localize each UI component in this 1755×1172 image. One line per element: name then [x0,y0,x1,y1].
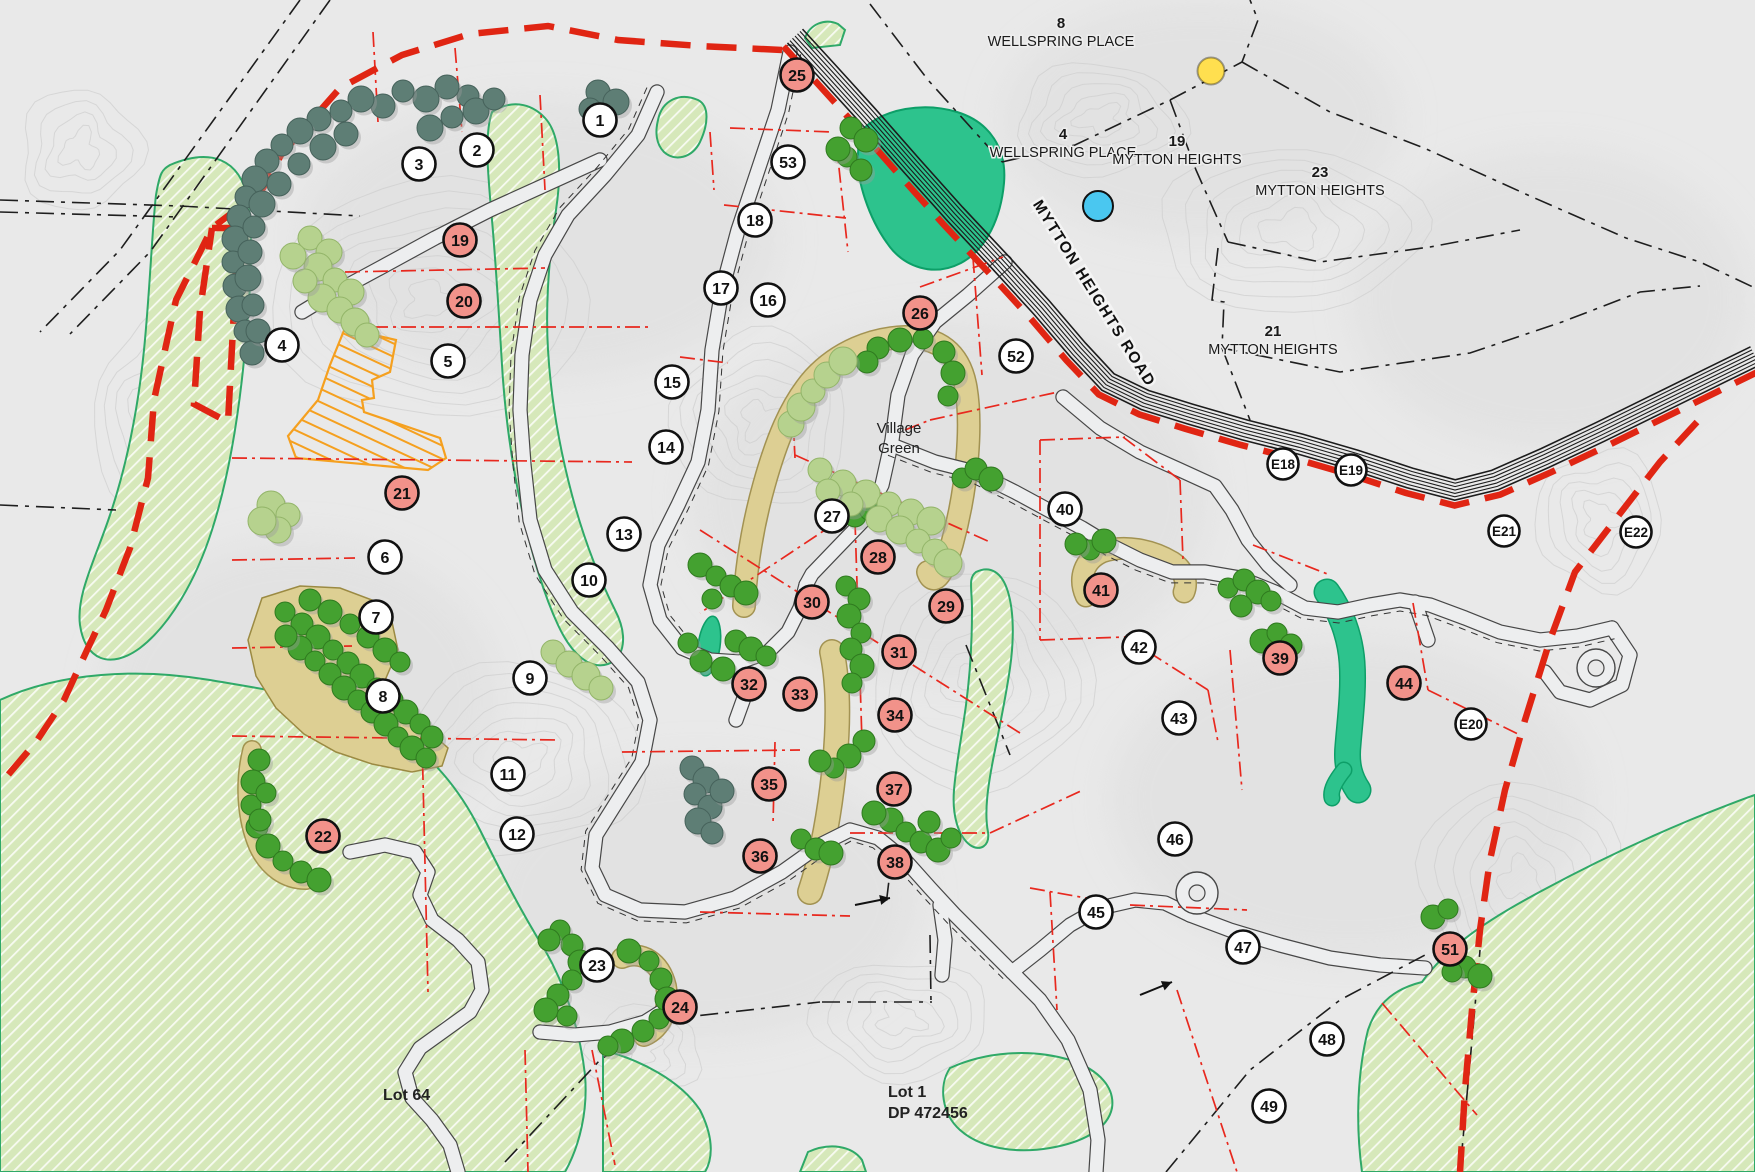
svg-text:34: 34 [886,708,904,725]
lot-marker-45: 45 [1080,896,1113,929]
lot-marker-E21: E21 [1489,516,1520,547]
lot-marker-27: 27 [816,500,849,533]
lot-marker-9: 9 [514,662,547,695]
lot-marker-35: 35 [753,768,786,801]
svg-text:8: 8 [379,689,388,706]
svg-text:45: 45 [1087,905,1105,922]
svg-text:1: 1 [596,113,605,130]
svg-text:48: 48 [1318,1032,1336,1049]
lot-marker-28: 28 [862,541,895,574]
lot-marker-30: 30 [796,586,829,619]
svg-text:4: 4 [278,338,287,355]
lot-marker-16: 16 [752,284,785,317]
lot-marker-18: 18 [739,204,772,237]
lot-marker-24: 24 [664,991,697,1024]
lot-marker-38: 38 [879,846,912,879]
svg-text:21: 21 [1265,323,1282,340]
svg-text:2: 2 [473,143,482,160]
svg-text:30: 30 [803,595,821,612]
lot-marker-6: 6 [369,541,402,574]
blue-dot [1083,191,1113,221]
svg-text:38: 38 [886,855,904,872]
lot-marker-20: 20 [448,285,481,318]
lot-marker-E22: E22 [1621,517,1652,548]
lot-marker-33: 33 [784,678,817,711]
svg-text:35: 35 [760,777,778,794]
svg-text:16: 16 [759,293,777,310]
site-plan-map: 8WELLSPRING PLACE4WELLSPRING PLACE19MYTT… [0,0,1755,1172]
svg-text:26: 26 [911,306,929,323]
svg-text:24: 24 [671,1000,689,1017]
svg-text:42: 42 [1130,640,1148,657]
lot-marker-52: 52 [1000,340,1033,373]
lot-marker-14: 14 [650,431,683,464]
lot-marker-44: 44 [1388,667,1421,700]
svg-text:Lot 1: Lot 1 [888,1084,926,1101]
lot-marker-E20: E20 [1456,709,1487,740]
svg-text:MYTTON HEIGHTS: MYTTON HEIGHTS [1255,183,1384,199]
lot-marker-48: 48 [1311,1023,1344,1056]
svg-text:22: 22 [314,829,332,846]
lot-marker-32: 32 [733,668,766,701]
lot-marker-2: 2 [461,134,494,167]
lot-marker-39: 39 [1264,642,1297,675]
svg-text:51: 51 [1441,942,1459,959]
svg-text:E21: E21 [1492,524,1517,539]
lot-marker-15: 15 [656,366,689,399]
svg-text:9: 9 [526,671,535,688]
svg-text:3: 3 [415,157,424,174]
svg-text:MYTTON HEIGHTS: MYTTON HEIGHTS [1208,342,1337,358]
lot-marker-3: 3 [403,148,436,181]
svg-text:23: 23 [1312,164,1329,181]
svg-text:12: 12 [508,827,526,844]
svg-text:15: 15 [663,375,681,392]
svg-text:40: 40 [1056,502,1074,519]
svg-text:49: 49 [1260,1099,1278,1116]
svg-text:37: 37 [885,782,903,799]
lot-marker-8: 8 [367,680,400,713]
lot-marker-40: 40 [1049,493,1082,526]
yellow-dot [1198,58,1225,85]
svg-text:47: 47 [1234,940,1252,957]
lot-marker-E19: E19 [1336,455,1367,486]
svg-text:23: 23 [588,958,606,975]
lot-marker-5: 5 [432,345,465,378]
lot-marker-11: 11 [492,758,525,791]
svg-text:19: 19 [1169,133,1186,150]
svg-text:DP 472456: DP 472456 [888,1105,968,1122]
svg-text:13: 13 [615,527,633,544]
lot-marker-36: 36 [744,840,777,873]
svg-text:18: 18 [746,213,764,230]
lot-marker-42: 42 [1123,631,1156,664]
lot-marker-7: 7 [360,601,393,634]
svg-text:Green: Green [878,440,920,457]
lot-marker-53: 53 [772,146,805,179]
svg-text:44: 44 [1395,676,1413,693]
svg-text:27: 27 [823,509,841,526]
svg-text:6: 6 [381,550,390,567]
svg-text:E22: E22 [1624,525,1648,540]
svg-text:Village: Village [877,420,922,437]
svg-text:7: 7 [372,610,381,627]
svg-text:4: 4 [1059,126,1068,143]
svg-text:Lot 64: Lot 64 [383,1087,430,1104]
svg-text:41: 41 [1092,583,1110,600]
svg-text:53: 53 [779,155,797,172]
lot-marker-19: 19 [444,224,477,257]
lot-marker-17: 17 [705,272,738,305]
lot-marker-51: 51 [1434,933,1467,966]
lot-marker-49: 49 [1253,1090,1286,1123]
lot-marker-23: 23 [581,949,614,982]
svg-text:36: 36 [751,849,769,866]
lot-marker-25: 25 [781,59,814,92]
lot-marker-12: 12 [501,818,534,851]
lot-marker-46: 46 [1159,823,1192,856]
lot-marker-1: 1 [584,104,617,137]
svg-text:E19: E19 [1339,463,1363,478]
lot-marker-41: 41 [1085,574,1118,607]
lot-marker-31: 31 [883,636,916,669]
lot-marker-47: 47 [1227,931,1260,964]
svg-text:E20: E20 [1459,717,1483,732]
svg-text:8: 8 [1057,15,1065,32]
svg-text:WELLSPRING PLACE: WELLSPRING PLACE [988,34,1135,50]
lot-marker-4: 4 [266,329,299,362]
svg-text:46: 46 [1166,832,1184,849]
svg-text:33: 33 [791,687,809,704]
area-label-lot-64: Lot 64 [383,1087,430,1104]
svg-text:E18: E18 [1271,457,1296,472]
svg-text:17: 17 [712,281,730,298]
svg-text:MYTTON HEIGHTS: MYTTON HEIGHTS [1112,152,1241,168]
svg-text:20: 20 [455,294,473,311]
svg-text:43: 43 [1170,711,1188,728]
svg-text:52: 52 [1007,349,1025,366]
lot-marker-10: 10 [573,564,606,597]
svg-text:28: 28 [869,550,887,567]
lot-marker-34: 34 [879,699,912,732]
svg-text:25: 25 [788,68,806,85]
svg-text:10: 10 [580,573,598,590]
svg-text:19: 19 [451,233,469,250]
svg-text:14: 14 [657,440,675,457]
lot-marker-37: 37 [878,773,911,806]
lot-marker-43: 43 [1163,702,1196,735]
svg-text:31: 31 [890,645,908,662]
site-plan-stage: 8WELLSPRING PLACE4WELLSPRING PLACE19MYTT… [0,0,1755,1172]
lot-marker-22: 22 [307,820,340,853]
svg-text:5: 5 [444,354,453,371]
svg-text:32: 32 [740,677,758,694]
lot-marker-29: 29 [930,590,963,623]
svg-text:29: 29 [937,599,955,616]
lot-marker-E18: E18 [1268,449,1299,480]
lot-marker-21: 21 [386,477,419,510]
svg-text:21: 21 [393,486,411,503]
svg-text:11: 11 [500,767,517,784]
lot-marker-13: 13 [608,518,641,551]
lot-marker-26: 26 [904,297,937,330]
svg-text:39: 39 [1271,651,1289,668]
